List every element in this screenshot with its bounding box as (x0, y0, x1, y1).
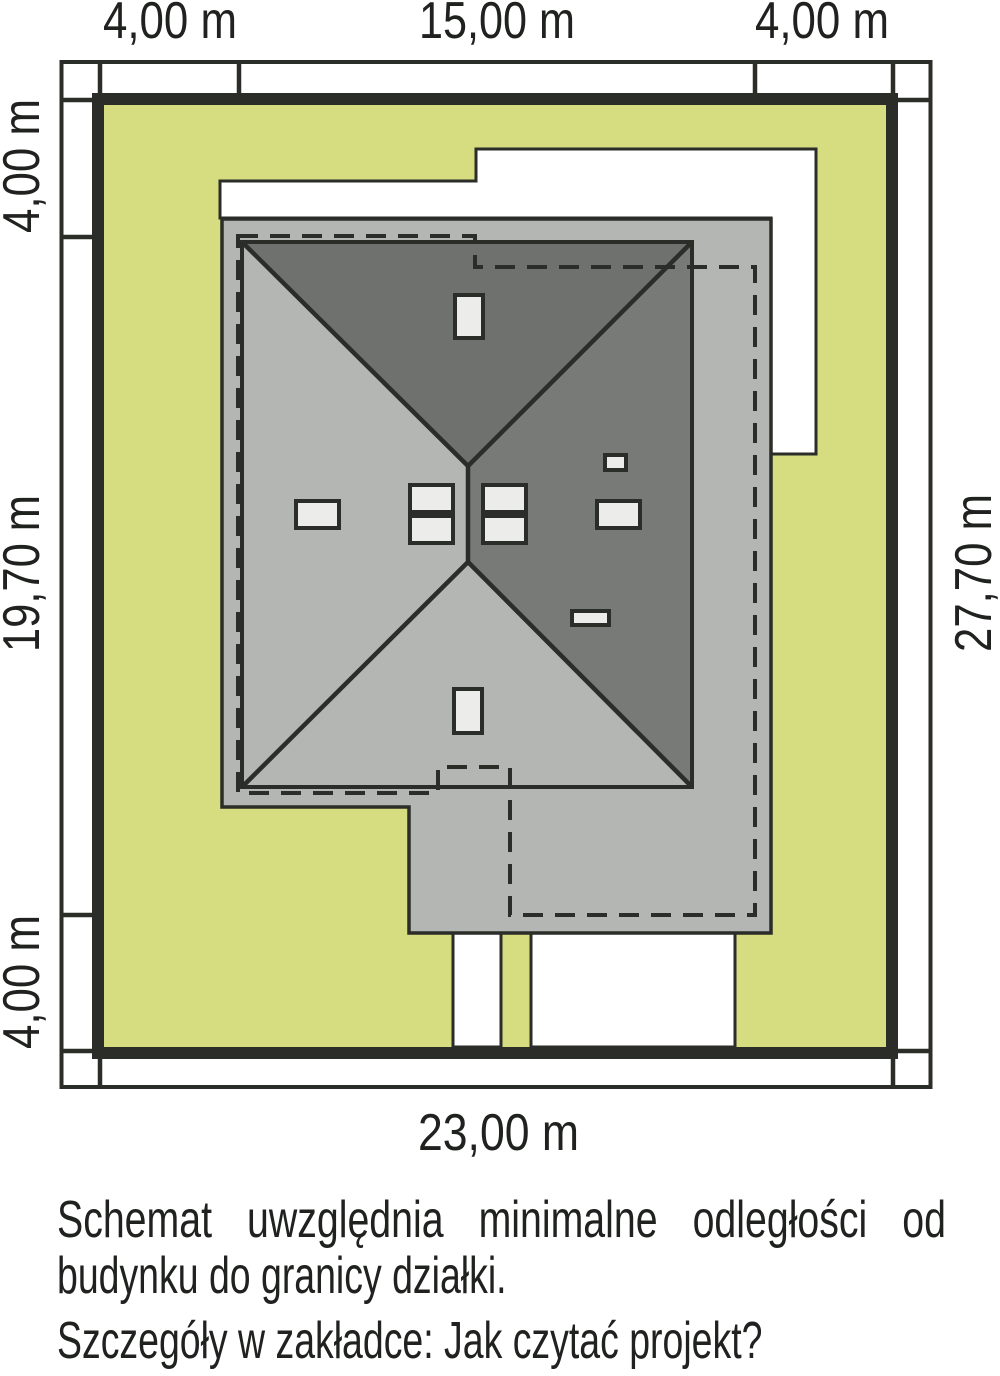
svg-text:4,00 m: 4,00 m (0, 99, 51, 233)
svg-text:4,00 m: 4,00 m (755, 0, 889, 50)
svg-text:15,00 m: 15,00 m (419, 0, 575, 50)
svg-text:23,00 m: 23,00 m (418, 1104, 579, 1162)
svg-text:4,00 m: 4,00 m (103, 0, 237, 50)
svg-text:27,70 m: 27,70 m (945, 494, 1000, 652)
svg-text:19,70 m: 19,70 m (0, 495, 51, 652)
svg-text:4,00 m: 4,00 m (0, 915, 51, 1049)
